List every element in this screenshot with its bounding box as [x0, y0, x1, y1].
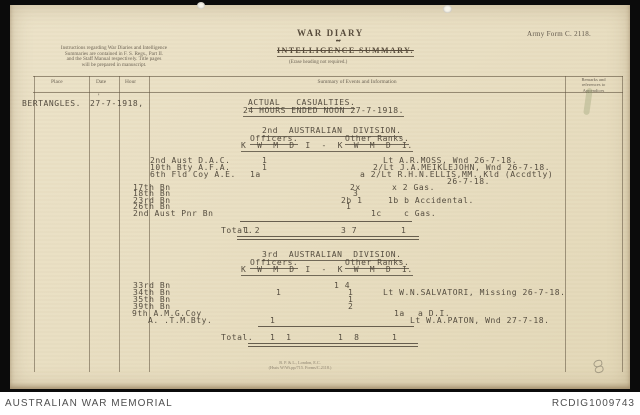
typed-line: 3 7 [341, 227, 357, 235]
typed-line: 1 [270, 317, 275, 325]
typed-line: 1 [262, 164, 267, 172]
printer-imprint-line: (Hssts W/Wt.pp/715. Forms/C.2118.) [180, 365, 420, 370]
typed-line: 6th Fld Coy A.E. [150, 171, 236, 179]
typed-line: 1 [401, 227, 406, 235]
typed-line: 1 [392, 334, 397, 342]
typed-line: 2b 1 [341, 197, 362, 205]
typed-line: Total. [221, 334, 253, 342]
typed-rule [240, 221, 412, 222]
typed-content-layer: ACTUAL CASUALTIES.24 HOURS ENDED NOON 27… [0, 0, 640, 415]
typed-line: 1b b Accidental. [388, 197, 474, 205]
typed-rule [248, 343, 418, 344]
typed-line: 1c [371, 210, 382, 218]
typed-line: 1 1 [270, 334, 291, 342]
typed-line: 1 [276, 289, 281, 297]
typed-line: A. .T.M.Bty. [148, 317, 212, 325]
typed-line: 1a [394, 310, 405, 318]
typed-line: 2nd Aust Pnr Bn [133, 210, 214, 218]
typed-line: K W M D I - K W M D I. [241, 142, 413, 152]
typed-line: 1 8 [338, 334, 359, 342]
viewer-footer: AUSTRALIAN WAR MEMORIAL RCDIG1009743 [0, 392, 640, 415]
printer-imprint: B. P. & L., London, E.C. (Hssts W/Wt.pp/… [180, 360, 420, 370]
typed-line: Lt W.A.PATON, Wnd 27-7-18. [410, 317, 550, 325]
typed-line: 24 HOURS ENDED NOON 27-7-1918. [243, 107, 404, 117]
document-viewer: Instructions regarding War Diaries and I… [0, 0, 640, 415]
typed-line: c Gas. [404, 210, 436, 218]
typed-rule [258, 326, 414, 327]
typed-rule [237, 236, 419, 237]
footer-brand: AUSTRALIAN WAR MEMORIAL [5, 398, 173, 409]
typed-line: 1a [250, 171, 261, 179]
typed-line: 1 [346, 203, 351, 211]
footer-record-id: RCDIG1009743 [552, 398, 635, 409]
typed-line: 1 2 [244, 227, 260, 235]
typed-line: Lt W.N.SALVATORI, Missing 26-7-18. [383, 289, 565, 297]
typed-line: K W M D I - K W M D I. [241, 266, 413, 276]
typed-line: 26-7-18. [447, 178, 490, 186]
typed-line: x 2 Gas. [392, 184, 435, 192]
typed-line: 2 [348, 303, 353, 311]
